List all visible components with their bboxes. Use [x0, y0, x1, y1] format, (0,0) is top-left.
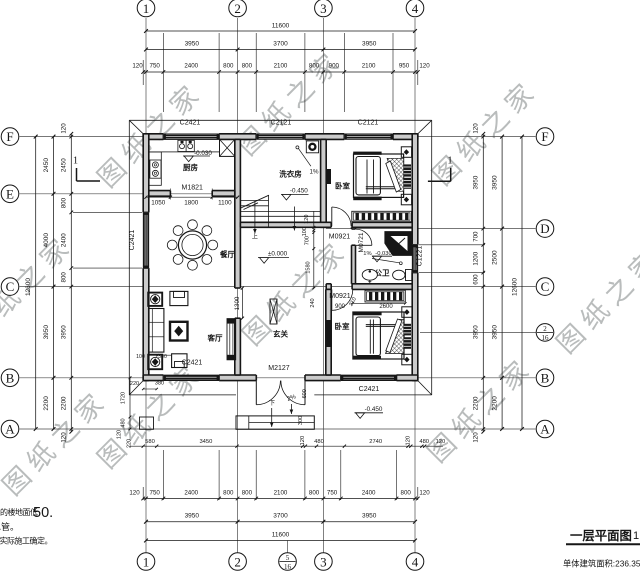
svg-text:800: 800	[61, 197, 68, 208]
svg-text:3: 3	[320, 1, 327, 16]
svg-text:3700: 3700	[273, 513, 288, 520]
svg-text:4000: 4000	[43, 233, 50, 248]
svg-text:220: 220	[130, 381, 139, 387]
svg-text:B: B	[6, 370, 15, 385]
svg-text:上: 上	[252, 233, 258, 241]
svg-text:3950: 3950	[362, 41, 377, 48]
svg-text:餐厅: 餐厅	[219, 249, 235, 259]
svg-text:120: 120	[473, 432, 480, 443]
svg-text:M1821: M1821	[181, 185, 203, 192]
svg-text:1580: 1580	[306, 261, 312, 273]
svg-text:120: 120	[304, 215, 310, 224]
svg-text:800: 800	[61, 272, 68, 283]
svg-text:600: 600	[473, 274, 480, 285]
svg-text:1: 1	[143, 554, 150, 569]
svg-text:800: 800	[242, 63, 253, 70]
svg-text:4: 4	[412, 554, 419, 569]
svg-text:120: 120	[129, 490, 140, 497]
svg-text:800: 800	[401, 490, 412, 497]
svg-text:3950: 3950	[473, 325, 480, 339]
svg-text:1800: 1800	[184, 199, 199, 206]
svg-text:120: 120	[61, 432, 68, 443]
svg-text:300: 300	[298, 416, 304, 425]
svg-text:12600: 12600	[25, 278, 32, 296]
svg-text:1: 1	[633, 530, 639, 542]
svg-text:F: F	[541, 129, 548, 144]
svg-text:120: 120	[436, 439, 446, 445]
svg-text:2740: 2740	[369, 439, 382, 445]
svg-text:900: 900	[335, 304, 346, 310]
svg-text:2400: 2400	[184, 490, 198, 497]
svg-text:1050: 1050	[151, 199, 166, 206]
svg-text:900: 900	[329, 63, 340, 70]
svg-text:3950: 3950	[473, 175, 480, 189]
svg-text:16: 16	[284, 563, 292, 571]
svg-text:一层平面图: 一层平面图	[570, 529, 632, 543]
svg-text:2450: 2450	[43, 158, 50, 173]
svg-text:120: 120	[405, 436, 411, 446]
svg-text:800: 800	[223, 490, 234, 497]
svg-text:750: 750	[150, 490, 161, 497]
svg-text:16: 16	[542, 334, 550, 342]
svg-text:C: C	[541, 279, 550, 294]
svg-text:800: 800	[242, 490, 253, 497]
svg-text:玄关: 玄关	[273, 328, 288, 338]
svg-text:100: 100	[302, 227, 308, 236]
svg-text:M0921: M0921	[329, 293, 351, 300]
svg-text:E: E	[6, 186, 14, 201]
svg-text:12600: 12600	[511, 278, 518, 296]
svg-text:洗衣房: 洗衣房	[279, 168, 302, 178]
svg-text:1300: 1300	[234, 296, 241, 310]
svg-text:B: B	[541, 370, 550, 385]
svg-text:700: 700	[473, 231, 480, 242]
svg-text:950: 950	[399, 63, 410, 70]
svg-text:2100: 2100	[274, 490, 288, 497]
svg-text:2200: 2200	[473, 396, 480, 410]
svg-text:2450: 2450	[61, 158, 68, 172]
svg-text:C2421: C2421	[180, 119, 201, 126]
svg-text:A: A	[540, 422, 550, 437]
svg-text:580: 580	[145, 439, 155, 445]
svg-text:A: A	[5, 422, 15, 437]
svg-text:2100: 2100	[274, 63, 288, 70]
svg-text:2400: 2400	[362, 490, 376, 497]
svg-text:750: 750	[150, 63, 161, 70]
svg-text:F: F	[6, 129, 13, 144]
svg-text:2600: 2600	[379, 304, 393, 310]
svg-text:2400: 2400	[61, 233, 68, 247]
svg-text:240: 240	[310, 298, 316, 307]
svg-text:2: 2	[543, 325, 547, 333]
svg-text:11600: 11600	[272, 23, 290, 30]
svg-text:800: 800	[223, 63, 234, 70]
svg-text:120: 120	[419, 490, 430, 497]
svg-text:D: D	[540, 221, 549, 236]
svg-text:3950: 3950	[491, 175, 498, 190]
svg-text:11600: 11600	[272, 532, 290, 539]
svg-text:遵实际施工确定。: 遵实际施工确定。	[0, 536, 52, 546]
svg-text:800: 800	[309, 63, 320, 70]
svg-text:下: 下	[269, 400, 275, 407]
svg-text:单体建筑面积:236.35M: 单体建筑面积:236.35M	[563, 559, 640, 569]
svg-text:C2421: C2421	[182, 359, 203, 366]
svg-text:100: 100	[136, 354, 145, 360]
svg-text:2200: 2200	[491, 396, 498, 411]
svg-text:1720: 1720	[120, 392, 126, 404]
svg-text:3950: 3950	[61, 325, 68, 339]
svg-text:2400: 2400	[184, 63, 198, 70]
svg-text:3450: 3450	[199, 439, 212, 445]
svg-text:C2121: C2121	[358, 119, 379, 126]
svg-text:380: 380	[158, 354, 167, 360]
svg-text:2200: 2200	[43, 396, 50, 411]
svg-text:800: 800	[309, 490, 320, 497]
svg-text:C1221: C1221	[417, 246, 424, 267]
svg-text:1100: 1100	[218, 199, 232, 206]
svg-text:C2421: C2421	[359, 386, 380, 393]
svg-text:120: 120	[61, 123, 68, 134]
svg-text:1: 1	[73, 156, 78, 167]
svg-text:5: 5	[286, 554, 290, 562]
svg-text:卧室: 卧室	[335, 321, 350, 331]
svg-text:1: 1	[143, 1, 150, 16]
svg-text:M0721: M0721	[358, 232, 365, 252]
svg-text:120: 120	[300, 436, 306, 446]
svg-text:水管。: 水管。	[0, 521, 19, 532]
svg-text:120: 120	[473, 123, 480, 134]
svg-text:3950: 3950	[43, 325, 50, 340]
svg-text:3950: 3950	[362, 513, 377, 520]
svg-text:3700: 3700	[273, 41, 288, 48]
svg-text:客厅: 客厅	[207, 332, 223, 342]
svg-text:1200: 1200	[473, 251, 480, 265]
svg-text:220: 220	[127, 439, 133, 448]
svg-text:480: 480	[120, 418, 126, 427]
svg-text:1: 1	[447, 156, 452, 167]
svg-text:700: 700	[304, 236, 310, 245]
svg-text:2200: 2200	[61, 396, 68, 410]
svg-text:-0.450: -0.450	[365, 406, 383, 413]
svg-text:750: 750	[327, 490, 338, 497]
svg-text:2500: 2500	[491, 250, 498, 265]
svg-text:3950: 3950	[185, 41, 200, 48]
svg-text:2100: 2100	[362, 63, 376, 70]
svg-text:C2421: C2421	[129, 230, 136, 251]
svg-text:50.: 50.	[33, 505, 53, 521]
svg-text:3: 3	[320, 554, 327, 569]
svg-text:120: 120	[132, 63, 143, 70]
svg-text:卧室: 卧室	[335, 180, 350, 190]
svg-text:3950: 3950	[185, 513, 200, 520]
svg-text:-0.450: -0.450	[290, 188, 308, 195]
svg-text:M0921: M0921	[329, 234, 351, 241]
svg-text:4: 4	[412, 1, 419, 16]
svg-text:±0.000: ±0.000	[268, 251, 288, 258]
svg-text:1%: 1%	[310, 169, 319, 176]
svg-text:120: 120	[419, 63, 430, 70]
svg-text:3950: 3950	[491, 325, 498, 340]
svg-text:M2127: M2127	[268, 365, 290, 372]
svg-text:120: 120	[117, 430, 123, 439]
svg-text:2: 2	[234, 554, 241, 569]
svg-text:C2121: C2121	[271, 119, 292, 126]
svg-text:厨房: 厨房	[183, 162, 198, 172]
svg-text:380: 380	[155, 381, 164, 387]
svg-text:2: 2	[234, 1, 241, 16]
svg-text:C: C	[6, 279, 15, 294]
svg-text:480: 480	[314, 439, 324, 445]
svg-text:600: 600	[302, 389, 308, 398]
svg-text:480: 480	[419, 439, 429, 445]
